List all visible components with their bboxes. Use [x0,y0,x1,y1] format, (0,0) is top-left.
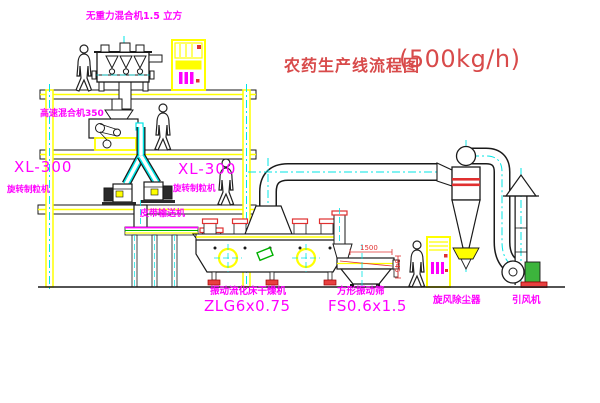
high-speed-mixer [89,99,143,150]
cyclone-top-elbow [457,147,476,166]
label-gravity-mixer: 无重力混合机1.5 立方 [86,12,182,22]
label-granulator-left-name: 旋转制粒机 [7,186,50,195]
label-granulator-left-model: XL-300 [14,160,72,175]
label-belt-conveyor: 皮带输送机 [140,210,185,219]
indicator-light [445,269,448,272]
person-figure [409,241,425,287]
cyclone-cone [452,200,480,248]
person-figure [76,45,92,91]
pesticide-line-flow-diagram: 农药生产线流程图 (500kg/h) 无重力混合机1.5 立方 高速混合机350… [0,0,600,403]
person-figure [155,104,171,150]
dimension-sieve-height: 345 [393,259,401,272]
cyclone-inlet [437,163,452,186]
label-granulator-right-model: XL-300 [178,162,236,177]
label-dryer-model: ZLG6x0.75 [204,299,291,314]
label-high-speed-mixer: 高速混合机350 [40,110,104,119]
indicator-light [197,45,201,49]
label-sieve-name: 方形振动筛 [337,287,385,297]
label-fan: 引风机 [512,296,541,306]
indicator-light [444,254,448,258]
fluid-bed-dryer [196,206,347,285]
indicator-light [196,79,200,83]
cyclone-collector [453,248,479,259]
granulator-right [141,182,175,203]
fan-motor [525,262,540,282]
label-dryer-name: 振动流化床干燥机 [210,287,286,297]
dimension-sieve-length: 1500 [360,244,378,252]
granulator-left [102,184,136,205]
control-cabinet-upper [172,40,205,90]
diagram-capacity: (500kg/h) [399,45,520,73]
mixer-outlet-pipe [149,55,162,62]
control-cabinet-lower [427,237,450,287]
label-granulator-right-name: 旋转制粒机 [173,185,216,194]
label-cyclone: 旋风除尘器 [433,296,481,306]
dryer-feet [208,272,336,285]
label-sieve-model: FS0.6x1.5 [328,299,407,314]
